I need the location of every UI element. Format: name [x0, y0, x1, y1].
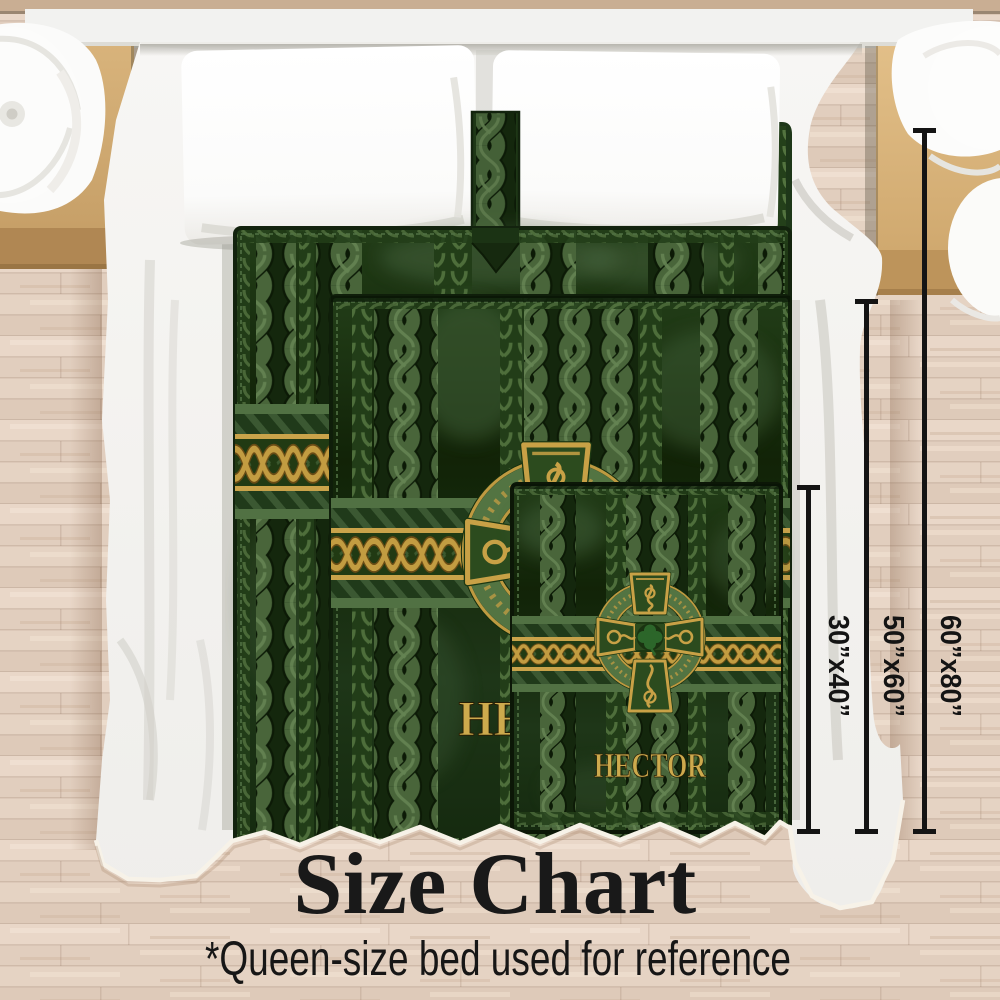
- svg-text:60”x80”: 60”x80”: [934, 615, 966, 717]
- svg-text:50”x60”: 50”x60”: [877, 615, 909, 717]
- svg-text:*Queen-size bed used for refer: *Queen-size bed used for reference: [205, 933, 791, 986]
- svg-text:Size Chart: Size Chart: [293, 836, 696, 933]
- svg-text:30”x40”: 30”x40”: [822, 615, 854, 717]
